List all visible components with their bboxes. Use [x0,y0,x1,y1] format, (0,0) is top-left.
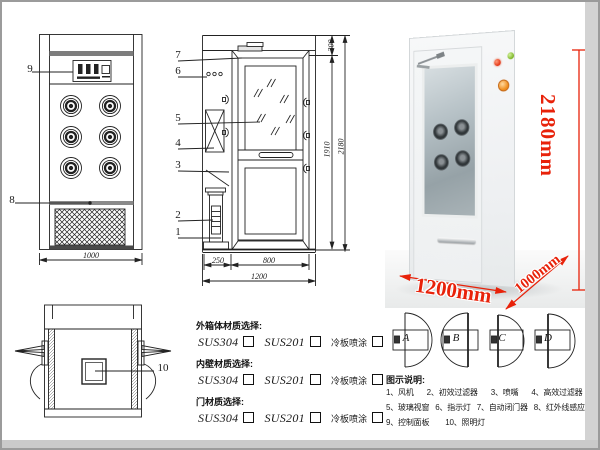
legend-row: 1、风机 2、初效过滤器 3、喷嘴 4、高效过滤器 [386,387,582,398]
legend-item: 2、初效过滤器 [427,387,478,398]
legend-item: 10、照明灯 [445,417,485,428]
legend-item: 9、控制面板 [386,417,429,428]
page-bottom-margin [2,440,598,448]
indicator-light-red [494,59,501,66]
legend-item: 6、指示灯 [435,402,470,413]
photo-nozzle [454,119,469,136]
dim-300: 300 [327,35,336,57]
checkbox[interactable] [310,374,321,385]
material-section-title: 门材质选择: [196,395,244,408]
dim-1200: 1200 [238,272,280,281]
photo-height-dimension: 2180mm [535,94,560,240]
dim-1910: 1910 [323,136,332,164]
door-option-c-label: C [496,332,508,344]
legend-title: 图示说明: [386,373,425,386]
callout-4-label: 4 [172,137,184,149]
callout-7-label: 7 [172,49,184,61]
door-closer-body [436,52,445,59]
photo-door [413,46,482,283]
callout-3-label: 3 [172,159,184,171]
callout-6-label: 6 [172,65,184,77]
checkbox[interactable] [310,336,321,347]
material-option-label: SUS304 [198,335,238,349]
legend-item: 8、红外线感应器 [534,402,593,413]
air-shower-spec-sheet: 9 8 7 6 5 4 3 2 1 10 1000 250 800 1200 3… [0,0,600,450]
callout-9-label: 9 [24,63,36,75]
callout-10-label: 10 [154,362,172,374]
material-option-label: 冷板喷涂 [331,376,367,386]
dim-2180: 2180 [337,133,346,161]
checkbox[interactable] [372,374,383,385]
dim-250: 250 [204,256,232,265]
callout-1-label: 1 [172,226,184,238]
checkbox[interactable] [243,412,254,423]
material-option-label: 冷板喷涂 [331,338,367,348]
legend-item: 3、喷嘴 [491,387,519,398]
photo-door-glass [422,63,478,219]
legend-row: 9、控制面板 10、照明灯 [386,417,485,428]
page-right-margin [585,2,598,448]
legend-item: 5、玻璃视窗 [386,402,429,413]
checkbox[interactable] [310,412,321,423]
legend-row: 5、玻璃视窗 6、指示灯 7、自动闭门器 8、红外线感应器 [386,402,593,413]
dim-1000: 1000 [70,251,112,260]
photo-door-handle [437,237,475,244]
material-option-row: SUS304SUS201冷板喷涂 [198,333,383,351]
material-option-label: SUS201 [264,411,304,425]
material-option-row: SUS304SUS201冷板喷涂 [198,409,383,427]
dim-800: 800 [248,256,290,265]
checkbox[interactable] [372,336,383,347]
photo-nozzle [433,123,448,140]
checkbox[interactable] [372,412,383,423]
photo-nozzle [434,154,449,170]
material-option-label: SUS304 [198,411,238,425]
checkbox[interactable] [243,374,254,385]
callout-2-label: 2 [172,209,184,221]
material-section-title: 外箱体材质选择: [196,319,262,332]
photo-nozzle [455,150,470,167]
legend-item: 4、高效过滤器 [531,387,582,398]
door-option-b-label: B [450,332,462,344]
callout-8-label: 8 [6,194,18,206]
callout-5-label: 5 [172,112,184,124]
door-closer-arm [417,65,430,69]
legend-item: 1、风机 [386,387,414,398]
material-option-label: SUS201 [264,373,304,387]
material-option-label: 冷板喷涂 [331,414,367,424]
material-section-title: 内壁材质选择: [196,357,253,370]
top-view-drawing [15,305,171,417]
emergency-button [498,79,509,91]
material-option-row: SUS304SUS201冷板喷涂 [198,371,383,389]
door-option-d-label: D [542,332,554,344]
door-option-a-label: A [400,332,412,344]
legend-item: 7、自动闭门器 [477,402,528,413]
material-option-label: SUS201 [264,335,304,349]
material-option-label: SUS304 [198,373,238,387]
checkbox[interactable] [243,336,254,347]
indicator-light-green [507,52,514,59]
photo-unit-front-face [409,30,515,288]
